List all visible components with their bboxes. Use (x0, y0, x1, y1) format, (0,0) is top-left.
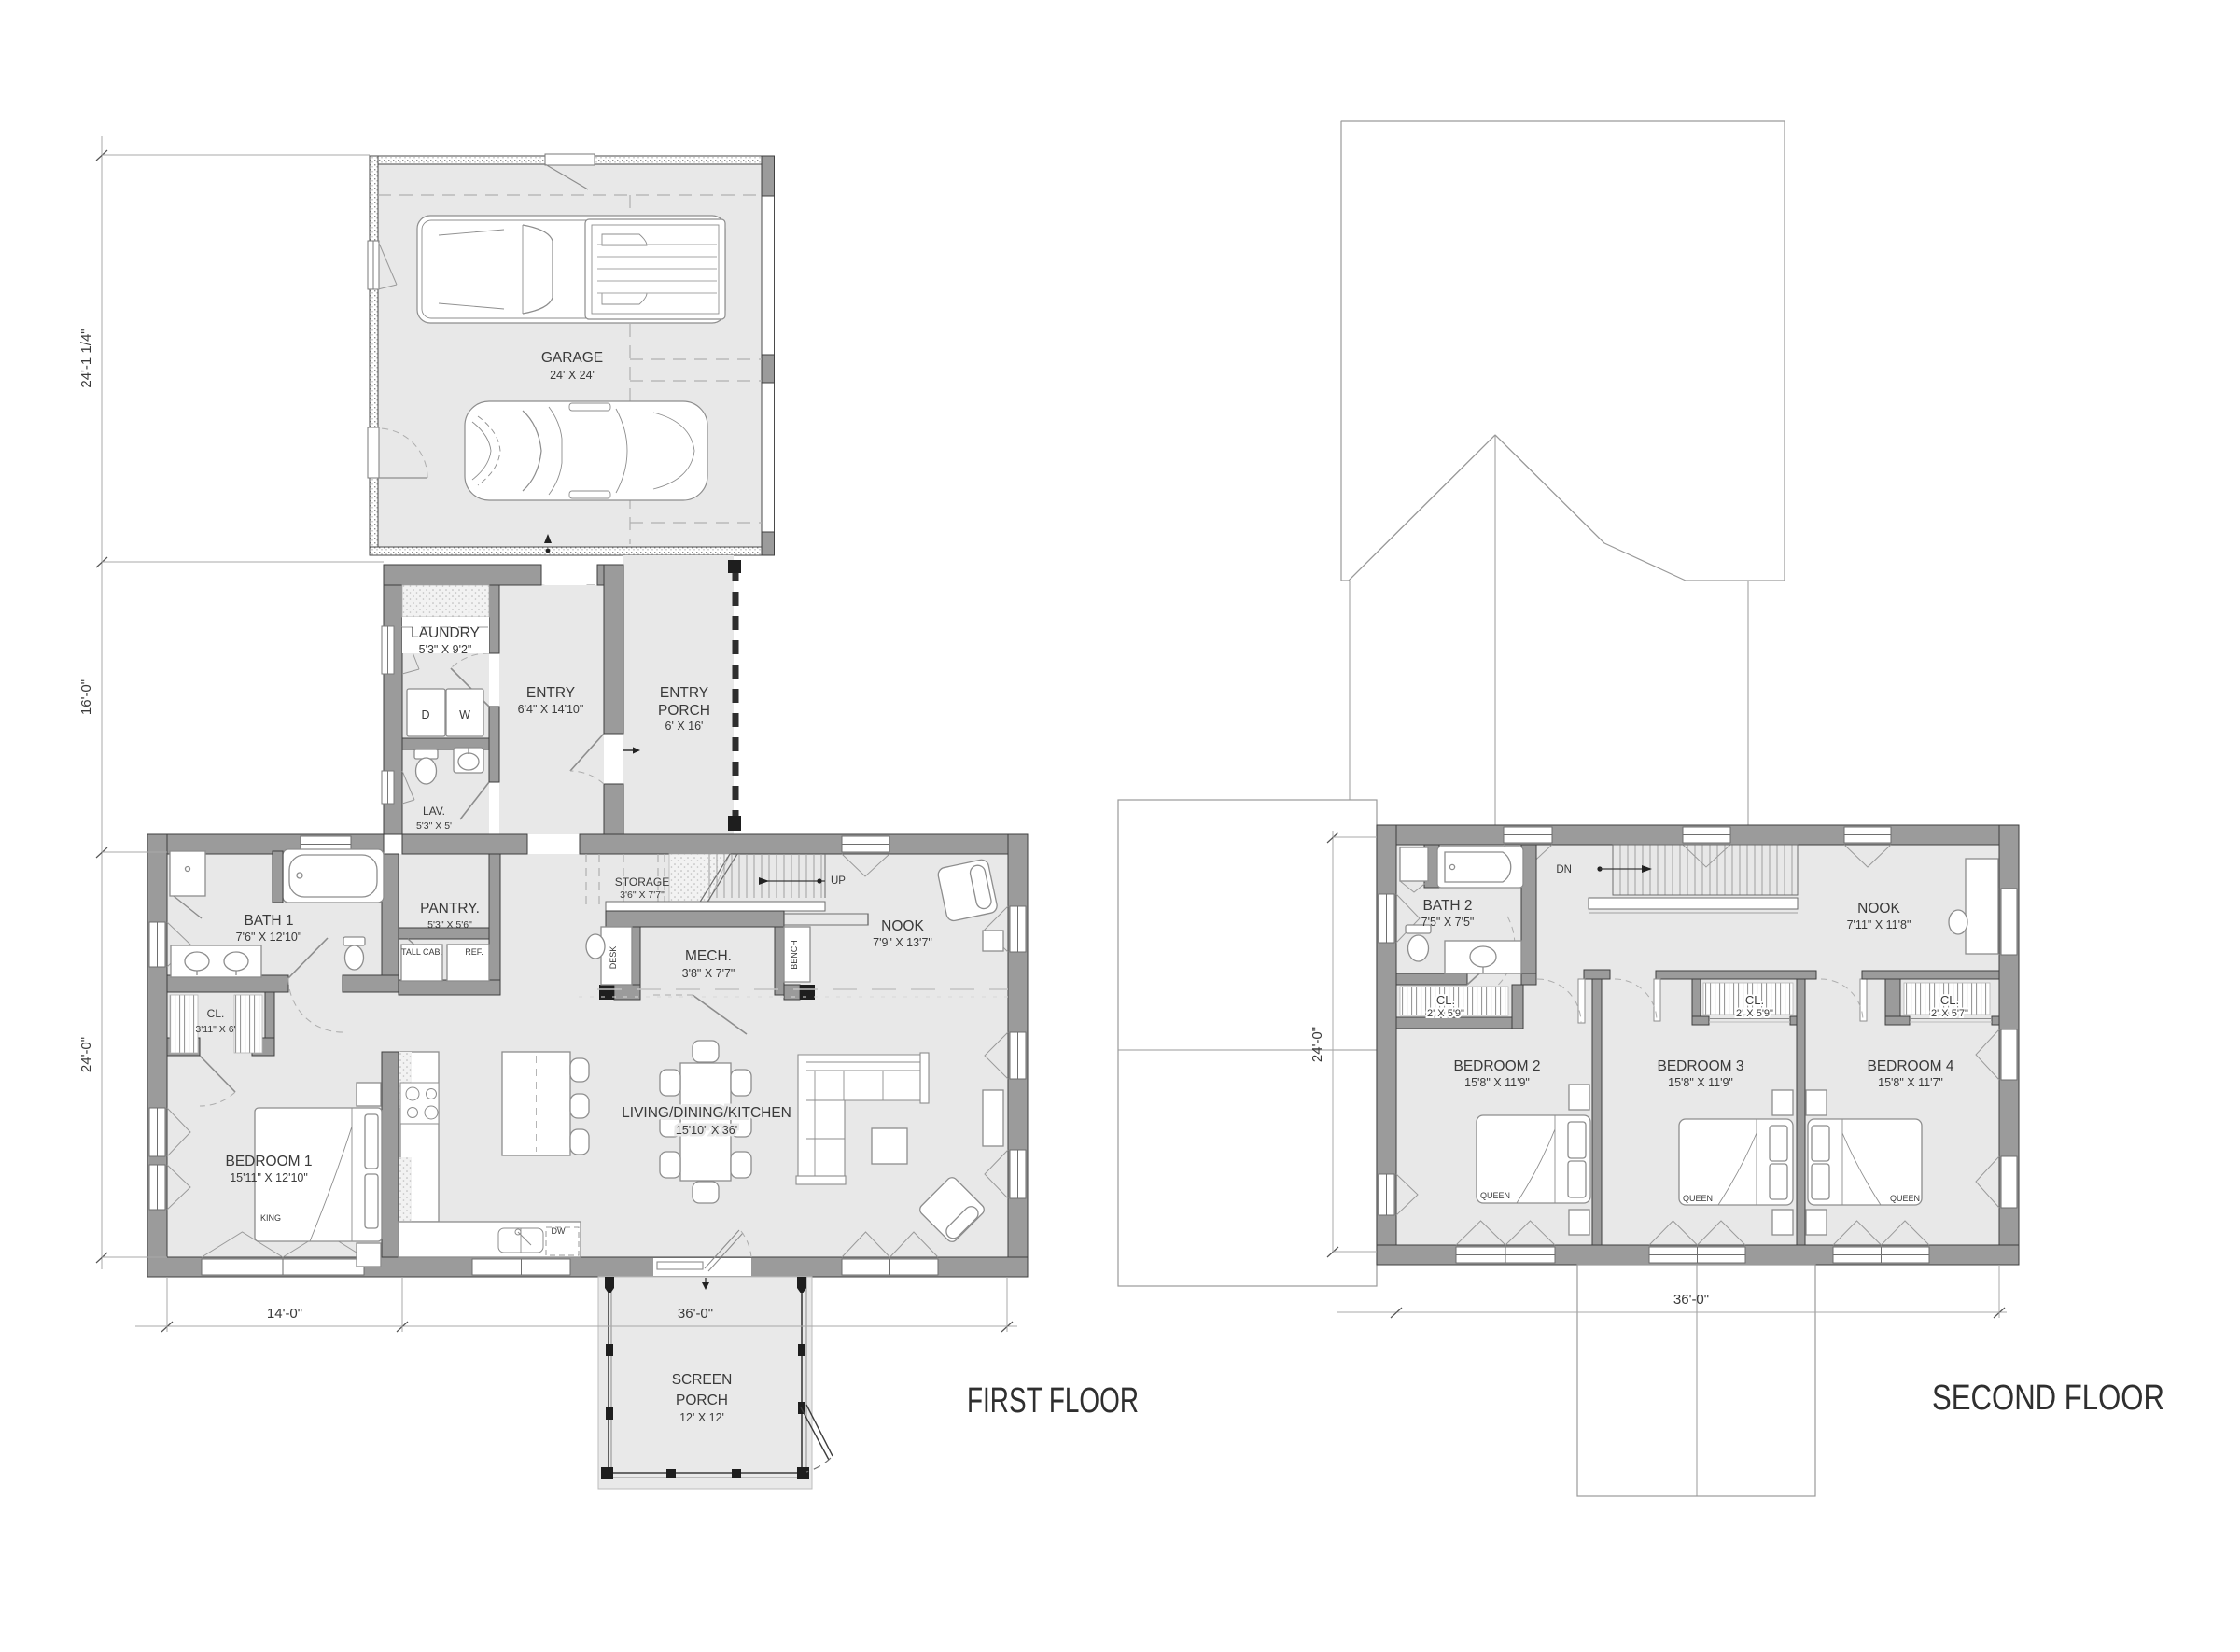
svg-text:LAUNDRY: LAUNDRY (411, 625, 480, 641)
svg-text:REF.: REF. (465, 947, 483, 957)
svg-text:15'8" X 11'7": 15'8" X 11'7" (1878, 1076, 1943, 1089)
svg-text:BEDROOM 4: BEDROOM 4 (1867, 1058, 1953, 1074)
svg-text:PORCH: PORCH (676, 1393, 728, 1408)
svg-text:CL.: CL. (1940, 993, 1959, 1007)
svg-text:7'11" X 11'8": 7'11" X 11'8" (1847, 918, 1911, 931)
svg-text:36'-0": 36'-0" (678, 1306, 713, 1322)
svg-text:PANTRY.: PANTRY. (420, 901, 480, 917)
svg-text:5'3" X 5'6": 5'3" X 5'6" (427, 919, 472, 931)
svg-text:QUEEN: QUEEN (1890, 1194, 1920, 1203)
svg-text:36'-0": 36'-0" (1673, 1292, 1709, 1308)
svg-text:15'8" X 11'9": 15'8" X 11'9" (1464, 1076, 1530, 1089)
svg-text:NOOK: NOOK (881, 918, 924, 934)
svg-text:QUEEN: QUEEN (1683, 1194, 1713, 1203)
svg-text:7'5" X 7'5": 7'5" X 7'5" (1421, 916, 1475, 929)
svg-text:BATH 2: BATH 2 (1422, 898, 1472, 914)
svg-text:W: W (459, 708, 470, 721)
svg-text:14'-0": 14'-0" (267, 1306, 302, 1322)
svg-text:D: D (421, 708, 429, 721)
svg-text:2' X 5'9": 2' X 5'9" (1427, 1008, 1464, 1019)
svg-text:DESK: DESK (609, 946, 618, 970)
svg-text:CL.: CL. (1436, 993, 1455, 1007)
svg-text:GARAGE: GARAGE (541, 350, 603, 366)
svg-text:CL.: CL. (207, 1007, 225, 1020)
svg-text:STORAGE: STORAGE (615, 875, 669, 889)
svg-text:3'11" X 6': 3'11" X 6' (195, 1024, 235, 1035)
svg-text:6'4" X 14'10": 6'4" X 14'10" (518, 703, 584, 716)
svg-text:15'8" X 11'9": 15'8" X 11'9" (1668, 1076, 1733, 1089)
svg-text:MECH.: MECH. (685, 948, 732, 964)
svg-text:5'3" X 9'2": 5'3" X 9'2" (419, 643, 472, 656)
svg-text:24' X 24': 24' X 24' (550, 369, 595, 382)
svg-text:SECOND FLOOR: SECOND FLOOR (1932, 1379, 2164, 1418)
svg-text:DN: DN (1556, 864, 1572, 875)
svg-text:5'3" X 5': 5'3" X 5' (416, 820, 452, 832)
svg-text:CL.: CL. (1745, 993, 1764, 1007)
svg-text:6' X 16': 6' X 16' (665, 720, 704, 733)
svg-text:ENTRY: ENTRY (660, 685, 708, 701)
svg-text:24'-0": 24'-0" (78, 1037, 94, 1072)
svg-text:3'8" X 7'7": 3'8" X 7'7" (682, 967, 735, 980)
svg-text:BEDROOM 1: BEDROOM 1 (225, 1154, 312, 1169)
svg-text:16'-0": 16'-0" (78, 679, 94, 715)
svg-text:BENCH: BENCH (790, 940, 799, 970)
svg-text:15'10" X 36': 15'10" X 36' (676, 1124, 737, 1137)
svg-text:7'6" X 12'10": 7'6" X 12'10" (236, 931, 302, 944)
svg-text:DW: DW (552, 1226, 566, 1236)
svg-text:7'9" X 13'7": 7'9" X 13'7" (873, 936, 932, 949)
svg-text:2' X 5'9": 2' X 5'9" (1736, 1008, 1773, 1019)
svg-text:2' X 5'7": 2' X 5'7" (1931, 1008, 1968, 1019)
svg-text:UP: UP (831, 875, 846, 887)
svg-text:QUEEN: QUEEN (1480, 1191, 1510, 1200)
svg-text:12' X 12': 12' X 12' (679, 1411, 724, 1424)
svg-text:LIVING/DINING/KITCHEN: LIVING/DINING/KITCHEN (622, 1105, 791, 1121)
svg-text:24'-1 1/4": 24'-1 1/4" (78, 329, 94, 387)
svg-text:BATH 1: BATH 1 (244, 913, 293, 929)
svg-text:LAV.: LAV. (423, 805, 445, 818)
svg-text:BEDROOM 2: BEDROOM 2 (1453, 1058, 1540, 1074)
svg-text:FIRST FLOOR: FIRST FLOOR (967, 1381, 1139, 1421)
svg-text:24'-0": 24'-0" (1309, 1027, 1325, 1062)
svg-text:TALL CAB.: TALL CAB. (401, 947, 442, 957)
svg-text:SCREEN: SCREEN (672, 1372, 733, 1388)
svg-text:ENTRY: ENTRY (526, 685, 575, 701)
svg-text:NOOK: NOOK (1857, 901, 1900, 917)
svg-text:3'6" X 7'7": 3'6" X 7'7" (620, 889, 665, 901)
svg-text:BEDROOM 3: BEDROOM 3 (1657, 1058, 1743, 1074)
svg-text:KING: KING (260, 1213, 281, 1223)
svg-text:15'11" X 12'10": 15'11" X 12'10" (230, 1171, 308, 1184)
svg-text:PORCH: PORCH (658, 703, 710, 719)
